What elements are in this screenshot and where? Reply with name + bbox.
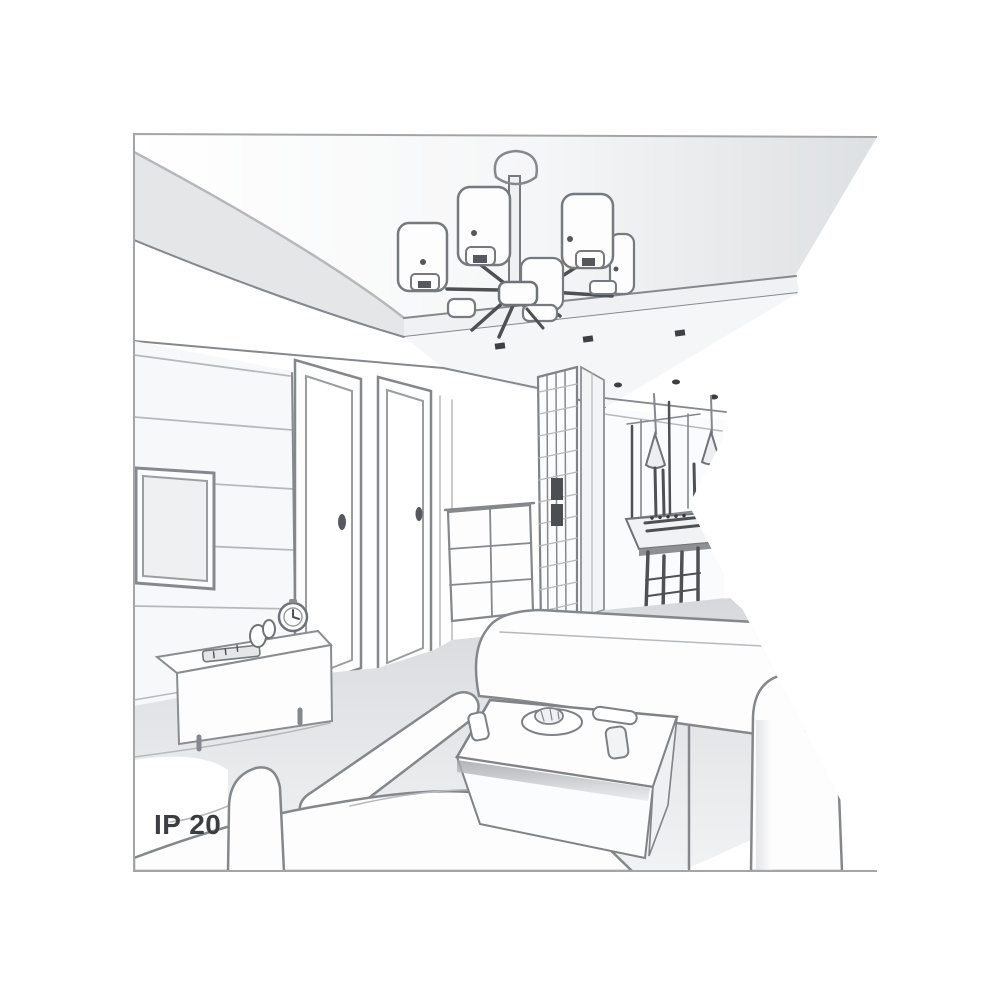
ip-rating-label: IP 20 [154, 809, 221, 840]
wardrobe-handle [551, 504, 563, 526]
wardrobe [538, 367, 604, 631]
interior-sketch-svg: IP 20 [0, 0, 1000, 1000]
chandelier-shade [562, 194, 613, 268]
product-illustration: IP 20 [0, 0, 1000, 1000]
chandelier-hub [499, 282, 537, 305]
sofa-chaise-arm [228, 767, 284, 872]
cup [605, 726, 629, 759]
door-handle [416, 507, 423, 521]
door-handle [338, 514, 346, 530]
chandelier-shade [398, 223, 447, 291]
chest-of-drawers [445, 503, 534, 621]
wardrobe-handle [551, 478, 563, 500]
chandelier-shade [458, 187, 510, 265]
